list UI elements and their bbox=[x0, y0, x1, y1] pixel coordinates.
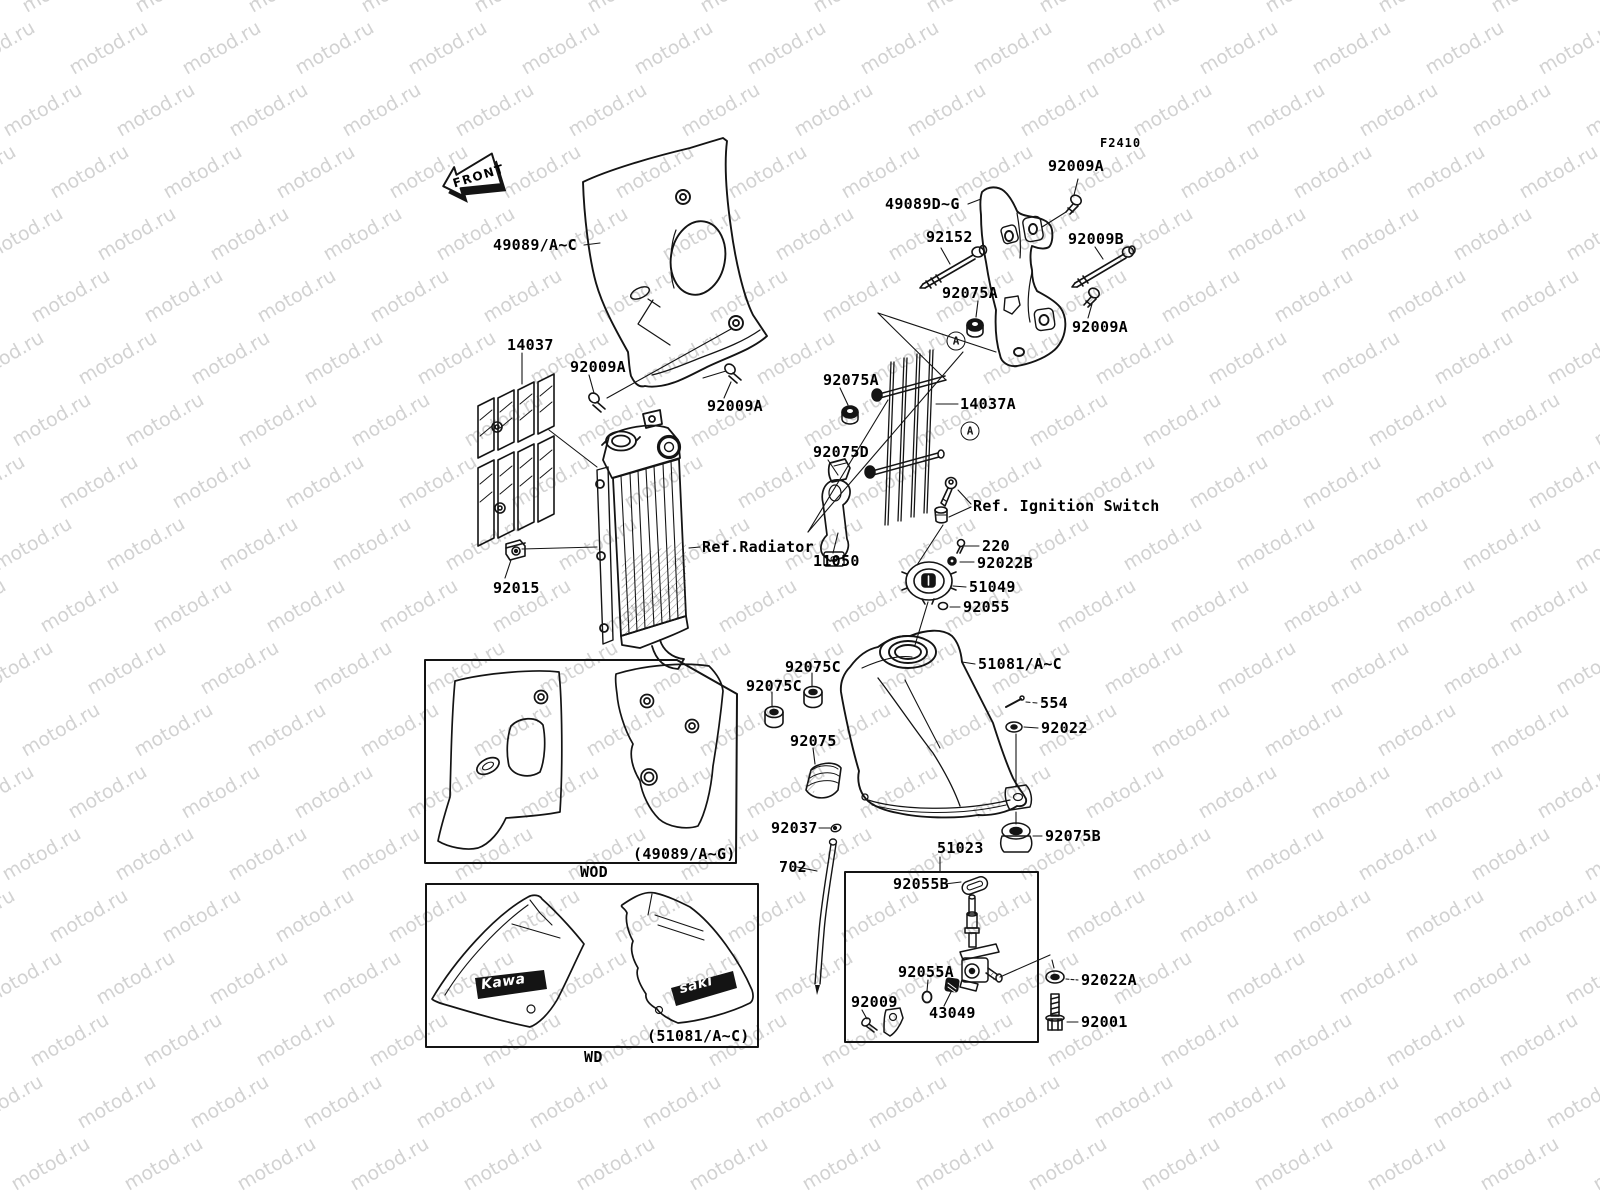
tube-702 bbox=[815, 823, 842, 995]
part-label-92152: 92152 bbox=[926, 228, 973, 246]
wod-box bbox=[425, 660, 737, 863]
damper-92075 bbox=[806, 763, 841, 798]
part-label-49089d-g: 49089D~G bbox=[885, 195, 960, 213]
part-label-14037: 14037 bbox=[507, 336, 554, 354]
part-label-92075b: 92075B bbox=[1045, 827, 1101, 845]
wod-right-panel bbox=[616, 664, 723, 828]
part-label-51023: 51023 bbox=[937, 839, 984, 857]
part-label-14037a: 14037A bbox=[960, 395, 1016, 413]
part-label-92022: 92022 bbox=[1041, 719, 1088, 737]
part-label-92075: 92075 bbox=[790, 732, 837, 750]
gasket-92055b bbox=[960, 875, 989, 896]
tank-cap-51049-group bbox=[902, 540, 965, 610]
clip-92015 bbox=[506, 540, 525, 560]
bracket-shroud-49089dg bbox=[980, 187, 1065, 366]
part-label-49089-a-g: (49089/A~G) bbox=[633, 845, 736, 863]
part-label-554: 554 bbox=[1040, 694, 1068, 712]
part-label-92022a: 92022A bbox=[1081, 971, 1137, 989]
part-label-92075c: 92075C bbox=[746, 677, 802, 695]
part-label-92055b: 92055B bbox=[893, 875, 949, 893]
leader-lines bbox=[505, 179, 1103, 1022]
grommet-92075a-right bbox=[967, 319, 983, 337]
grommet-92075a-center bbox=[842, 406, 858, 424]
part-label-51081-a-c: (51081/A~C) bbox=[647, 1027, 750, 1045]
louver-set-14037 bbox=[478, 374, 554, 546]
fasteners-top-right bbox=[920, 193, 1135, 337]
wd-box bbox=[426, 884, 758, 1047]
part-label-92009a: 92009A bbox=[707, 397, 763, 415]
part-label-92009b: 92009B bbox=[1068, 230, 1124, 248]
part-label-92009: 92009 bbox=[851, 993, 898, 1011]
part-label-92037: 92037 bbox=[771, 819, 818, 837]
ignition-switch-ref bbox=[935, 478, 957, 523]
part-label-11050: 11050 bbox=[813, 552, 860, 570]
petcock-51023 bbox=[960, 895, 1002, 991]
wd-right-cover bbox=[622, 893, 754, 1023]
part-label-51049: 51049 bbox=[969, 578, 1016, 596]
part-label-ref-radiator: Ref.Radiator bbox=[702, 538, 814, 556]
part-label-92015: 92015 bbox=[493, 579, 540, 597]
part-label-220: 220 bbox=[982, 537, 1010, 555]
part-label-92009a: 92009A bbox=[1048, 157, 1104, 175]
wd-left-cover bbox=[432, 895, 584, 1027]
part-label-wod: WOD bbox=[580, 863, 608, 881]
wod-left-panel bbox=[438, 671, 562, 849]
part-label-92075d: 92075D bbox=[813, 443, 869, 461]
part-label-92009a: 92009A bbox=[570, 358, 626, 376]
part-label-43049: 43049 bbox=[929, 1004, 976, 1022]
part-label-702: 702 bbox=[779, 858, 807, 876]
washer-92022a-bolt-92001 bbox=[1046, 971, 1064, 1030]
part-label-wd: WD bbox=[584, 1048, 603, 1066]
part-label-92075c: 92075C bbox=[785, 658, 841, 676]
part-label-49089-a-c: 49089/A~C bbox=[493, 236, 577, 254]
part-label-92055: 92055 bbox=[963, 598, 1010, 616]
part-label-92022b: 92022B bbox=[977, 554, 1033, 572]
part-label-92001: 92001 bbox=[1081, 1013, 1128, 1031]
part-label-f2410: F2410 bbox=[1100, 136, 1141, 150]
screw-92009a-midright bbox=[1084, 286, 1101, 307]
part-label-92009a: 92009A bbox=[1072, 318, 1128, 336]
shroud-49089ac bbox=[583, 138, 767, 387]
screw-92009a-top bbox=[1066, 193, 1083, 214]
part-label-92075a: 92075A bbox=[823, 371, 879, 389]
oring-92055a bbox=[923, 992, 932, 1003]
screw-92009-lever bbox=[860, 1008, 903, 1036]
parts-diagram-page: motod.rumotod.rumotod.rumotod.rumotod.ru… bbox=[0, 0, 1600, 1200]
view-marker-a: A bbox=[961, 422, 980, 441]
diagram-line-art bbox=[0, 0, 1600, 1200]
view-marker-a: A bbox=[947, 332, 966, 351]
part-label-ref-ignition-switch: Ref. Ignition Switch bbox=[973, 497, 1160, 515]
part-label-92075a: 92075A bbox=[942, 284, 998, 302]
radiator-ref bbox=[596, 410, 688, 669]
part-label-92055a: 92055A bbox=[898, 963, 954, 981]
part-label-51081-a-c: 51081/A~C bbox=[978, 655, 1062, 673]
